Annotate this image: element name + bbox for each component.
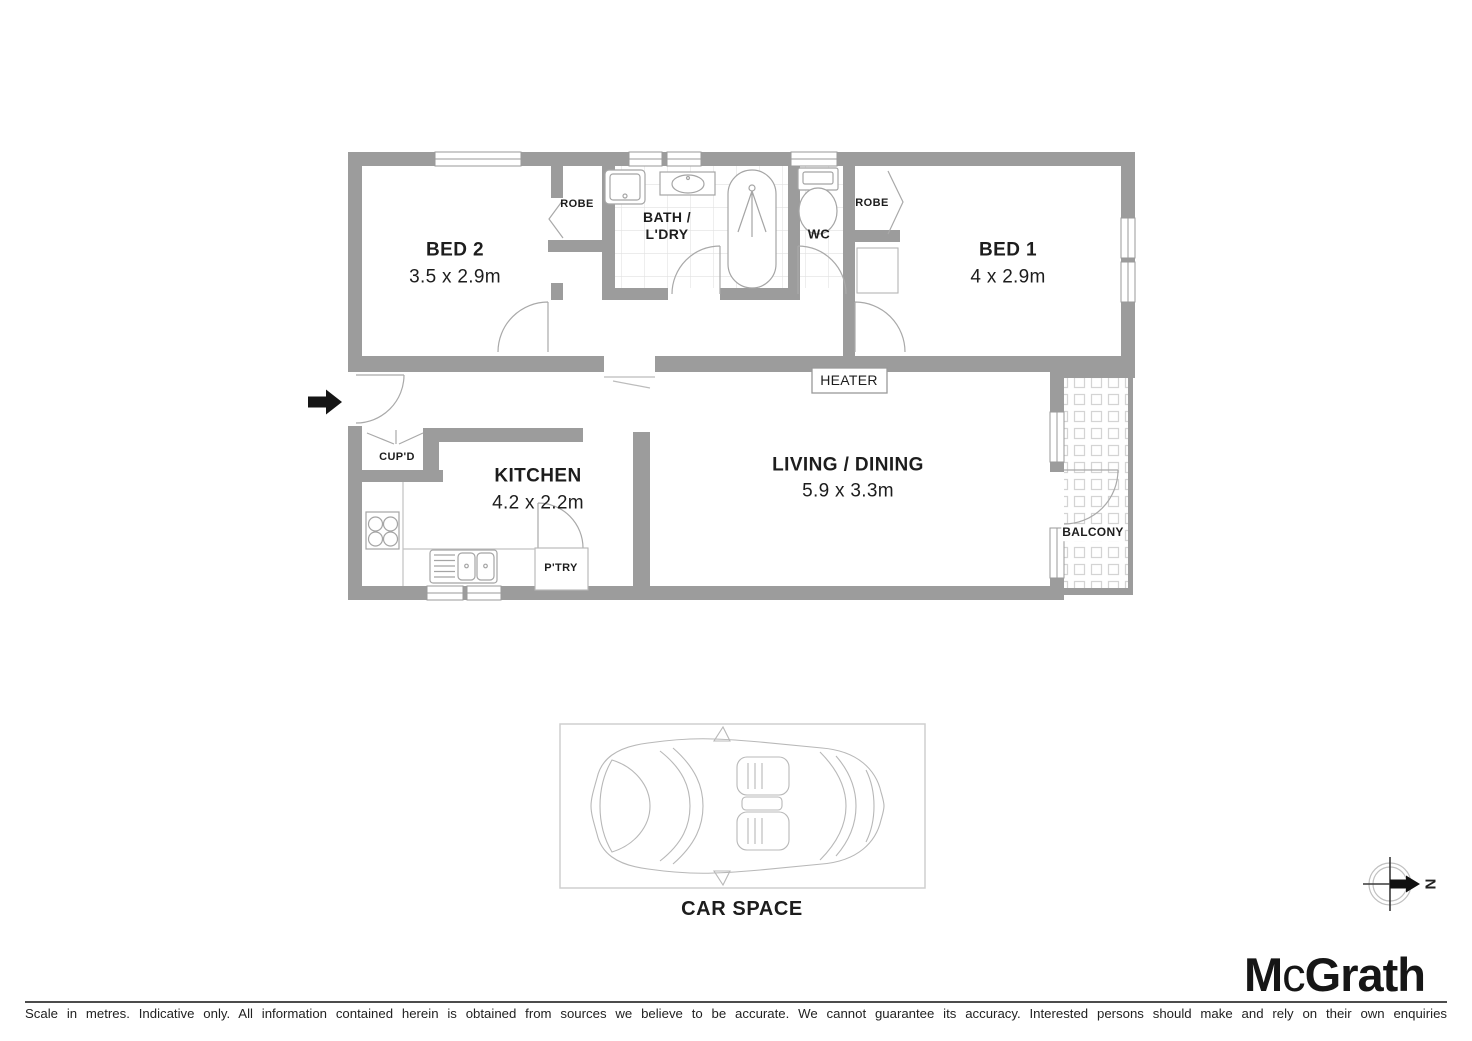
bed2-label: BED 2 [426, 239, 484, 264]
logo-part-m: M [1244, 948, 1282, 1001]
entry-arrow-icon [308, 390, 342, 415]
logo-part-c: c [1282, 948, 1305, 1001]
bathtub-shower-icon [728, 170, 776, 288]
pantry-label: P'TRY [544, 561, 578, 575]
vanity-basin-icon [660, 172, 715, 195]
kitchen-label: KITCHEN [494, 465, 581, 490]
bed1-label: BED 1 [979, 239, 1037, 264]
compass-icon [1363, 857, 1420, 911]
cupboard-label: CUP'D [379, 450, 415, 464]
footer-divider [25, 1001, 1447, 1003]
car-space-label: CAR SPACE [681, 896, 803, 922]
laundry-tub-icon [605, 170, 645, 204]
wc-label: WC [808, 227, 830, 244]
balcony-label: BALCONY [1061, 525, 1124, 541]
bath-laundry-label: BATH / L'DRY [643, 209, 691, 243]
floorplan-page: BED 2 3.5 x 2.9m ROBE BATH / L'DRY WC RO… [0, 0, 1472, 1041]
floorplan-graphics [0, 0, 1472, 1041]
car-space [560, 724, 925, 888]
bath-laundry-line1: BATH / [643, 209, 691, 226]
robe-bed2-label: ROBE [560, 197, 593, 211]
disclaimer-text: Scale in metres. Indicative only. All in… [25, 1006, 1447, 1021]
bed1-cabinet-box [857, 248, 898, 293]
toilet-icon [798, 168, 838, 234]
cooktop-icon [366, 512, 399, 549]
logo-part-grath: Grath [1305, 948, 1425, 1001]
living-dining-dims: 5.9 x 3.3m [802, 480, 894, 505]
bed1-dims: 4 x 2.9m [970, 266, 1045, 291]
balcony-paving [1064, 372, 1128, 588]
bath-laundry-line2: L'DRY [643, 226, 691, 243]
mcgrath-logo: McGrath [1244, 951, 1425, 998]
heater-label: HEATER [820, 371, 878, 389]
bed2-dims: 3.5 x 2.9m [409, 266, 501, 291]
compass-north-label: N [1422, 879, 1439, 890]
kitchen-dims: 4.2 x 2.2m [492, 492, 584, 517]
robe-bed1-label: ROBE [855, 196, 888, 210]
living-dining-label: LIVING / DINING [772, 454, 924, 479]
sink-icon [430, 550, 497, 583]
